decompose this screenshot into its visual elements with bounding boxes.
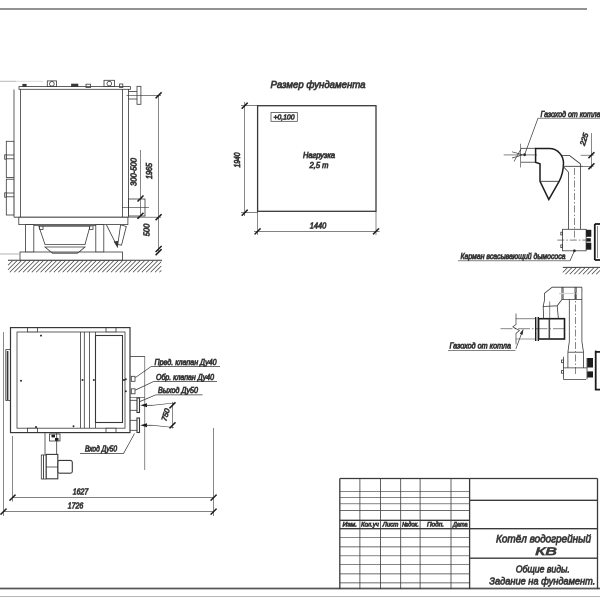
svg-text:Изм.: Изм. [343,522,358,529]
svg-text:Карман всасывающий дымососа: Карман всасывающий дымососа [461,252,566,261]
svg-text:Выход Ду50: Выход Ду50 [158,386,198,395]
svg-text:1726: 1726 [68,502,84,511]
svg-text:КВ: КВ [535,546,557,558]
svg-text:Лист: Лист [382,522,399,529]
svg-text:Нагрузка: Нагрузка [303,151,336,160]
svg-text:1940: 1940 [233,152,242,167]
svg-text:Обр. клапан Ду40: Обр. клапан Ду40 [156,373,214,382]
svg-text:Вход Ду50: Вход Ду50 [85,445,117,454]
svg-text:500: 500 [143,223,152,236]
svg-text:1965: 1965 [145,163,154,179]
svg-text:1440: 1440 [310,222,327,231]
svg-text:Дата: Дата [452,522,468,529]
svg-text:Пред. клапан Ду40: Пред. клапан Ду40 [155,358,217,367]
svg-text:Газоход от котла: Газоход от котла [450,342,512,351]
svg-text:Задание на фундамент.: Задание на фундамент. [489,575,595,587]
svg-text:300-500: 300-500 [130,157,139,186]
svg-text:+0,100: +0,100 [274,115,295,122]
svg-text:2,5 т: 2,5 т [309,161,329,170]
svg-text:Размер фундамента: Размер фундамента [271,79,366,91]
svg-text:Общие виды.: Общие виды. [516,564,570,576]
svg-text:№док.: №док. [402,521,419,529]
svg-text:Котёл водогрейный: Котёл водогрейный [496,533,591,545]
svg-text:Подп.: Подп. [427,521,444,529]
svg-text:Газоход от котла: Газоход от котла [541,110,600,119]
svg-text:1627: 1627 [73,488,89,497]
svg-text:Кол.уч: Кол.уч [361,522,379,529]
